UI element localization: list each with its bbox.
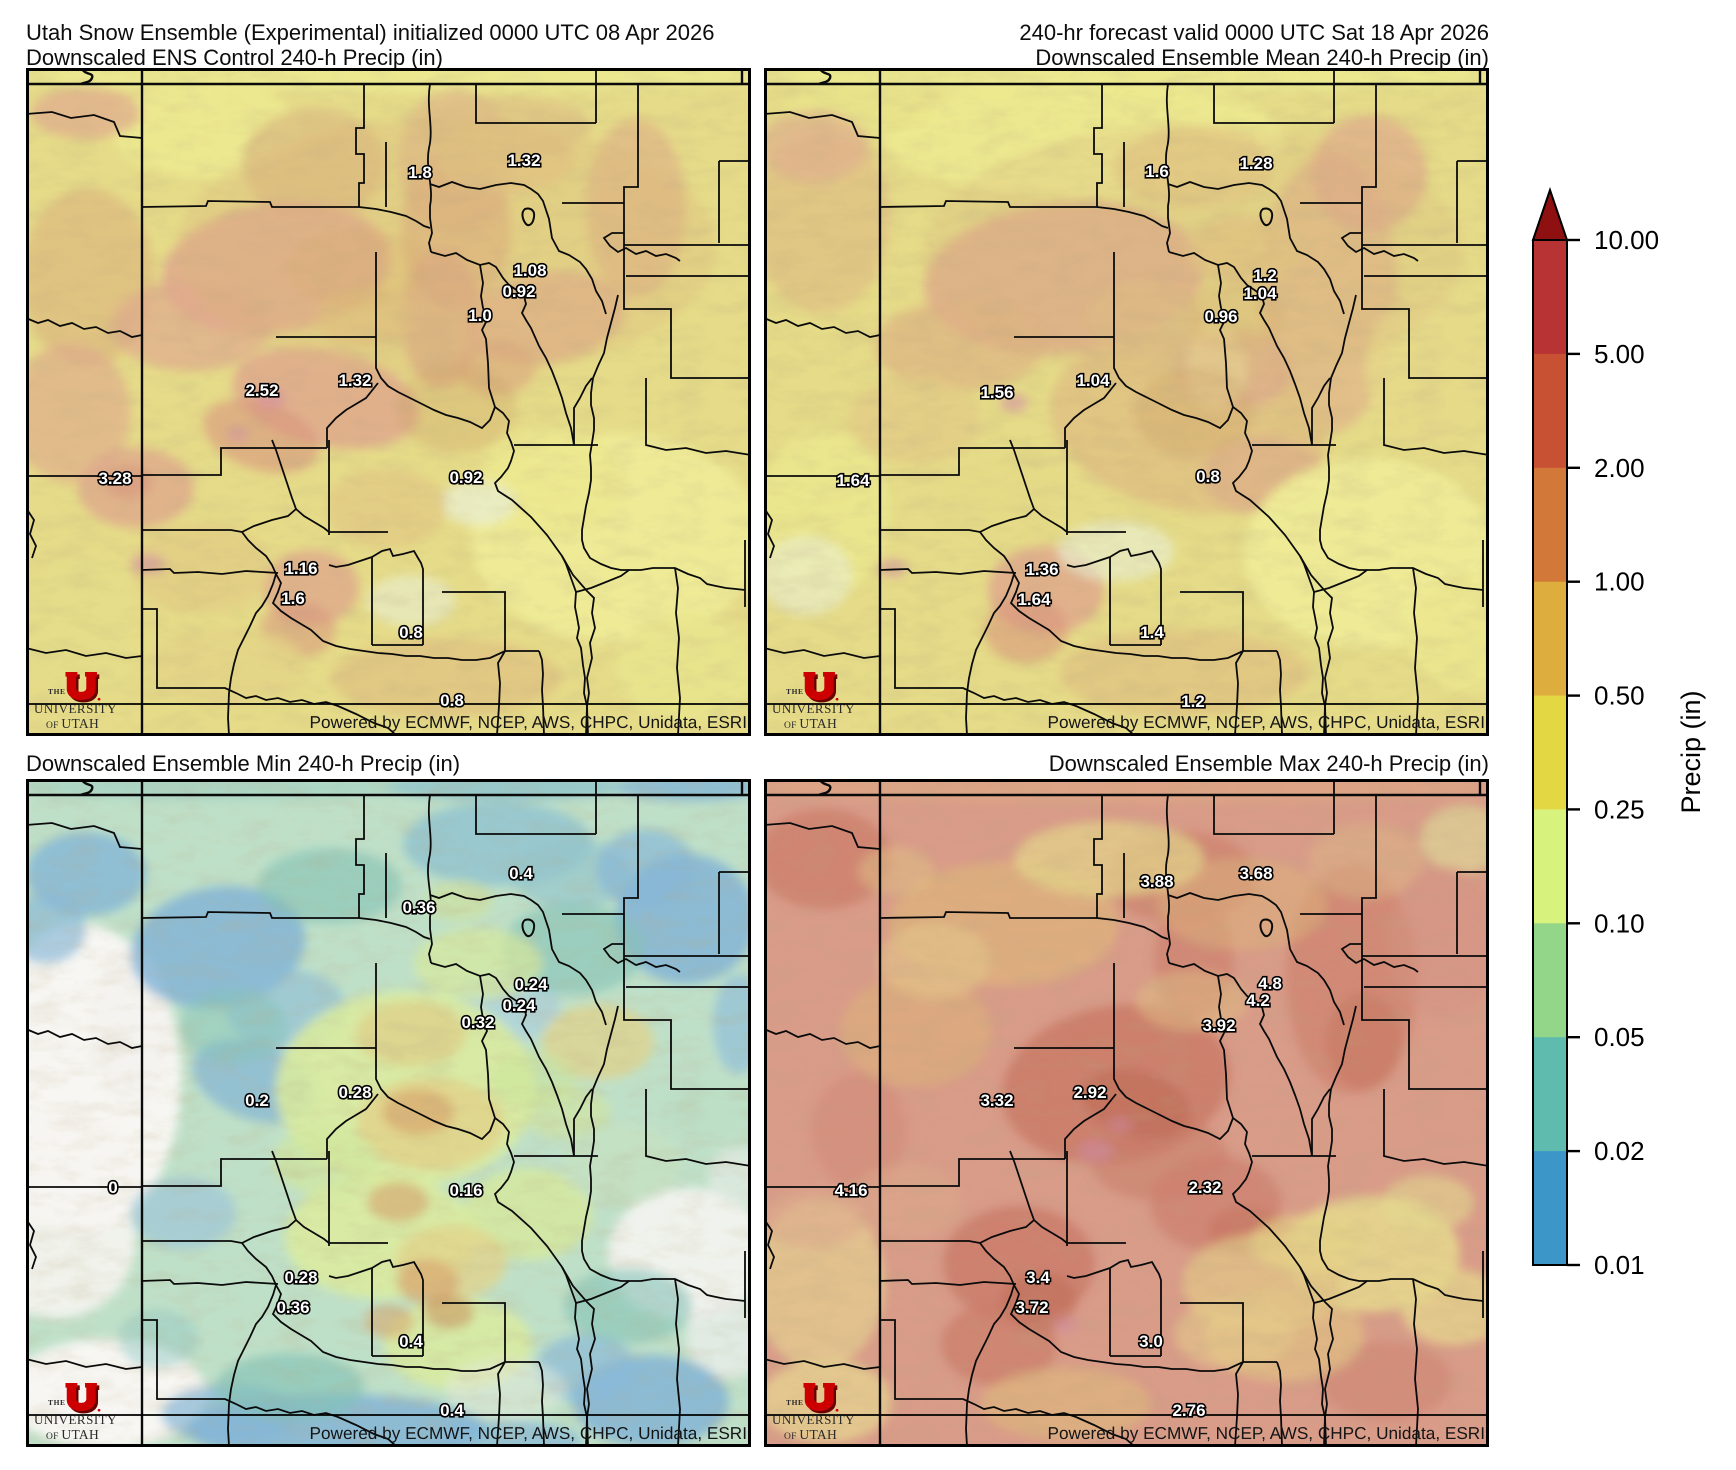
svg-text:0.02: 0.02: [1594, 1136, 1645, 1166]
svg-text:0.01: 0.01: [1594, 1250, 1645, 1280]
svg-text:0.05: 0.05: [1594, 1022, 1645, 1052]
svg-text:0.25: 0.25: [1594, 794, 1645, 824]
svg-text:2.00: 2.00: [1594, 453, 1645, 483]
svg-text:10.00: 10.00: [1594, 225, 1659, 255]
svg-text:1.00: 1.00: [1594, 567, 1645, 597]
svg-text:5.00: 5.00: [1594, 339, 1645, 369]
svg-text:Precip (in): Precip (in): [1676, 690, 1706, 813]
svg-text:0.10: 0.10: [1594, 908, 1645, 938]
svg-text:0.50: 0.50: [1594, 681, 1645, 711]
